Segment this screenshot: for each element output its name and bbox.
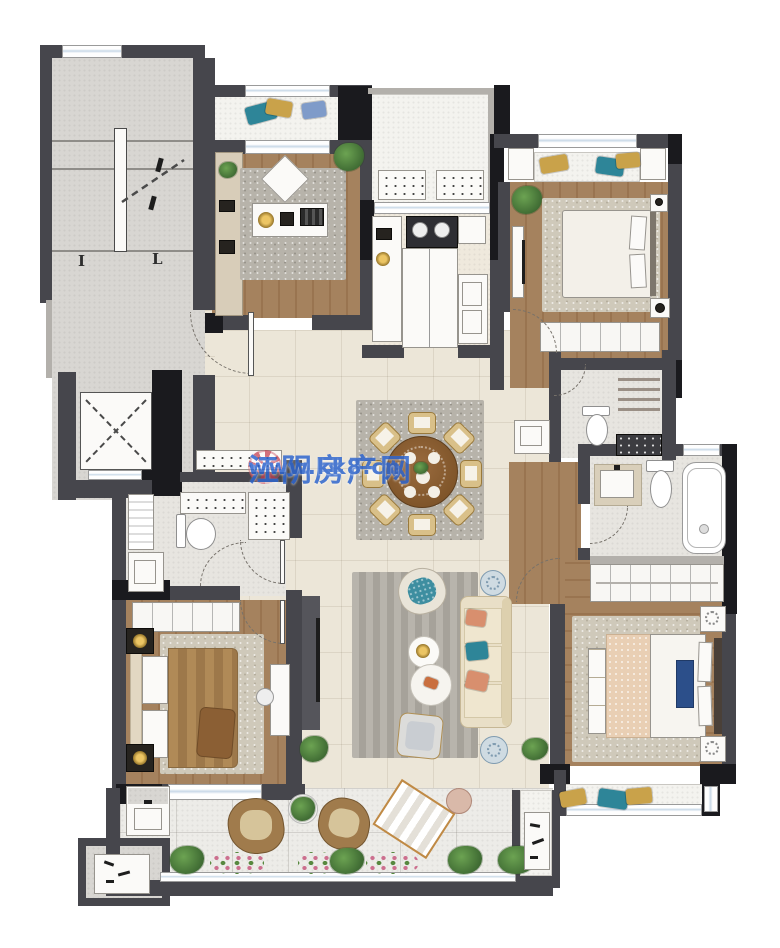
throw-pillow <box>465 641 489 661</box>
balcony-planter-box <box>640 148 666 180</box>
headboard <box>714 638 722 734</box>
wall <box>578 456 590 504</box>
place-setting <box>428 486 440 498</box>
window <box>704 786 718 812</box>
toilet-bowl <box>186 518 216 550</box>
toilet-bowl <box>586 414 608 446</box>
pillar <box>338 86 372 140</box>
pillow <box>629 215 647 250</box>
elevator-x-icon <box>80 392 152 470</box>
toilet-tank <box>176 514 186 548</box>
wall <box>40 45 52 303</box>
towel-bar <box>618 378 660 381</box>
kitchen-balcony-appliance <box>378 170 426 200</box>
towel-bar <box>618 398 660 401</box>
elevator-door <box>88 470 142 480</box>
wall <box>312 315 372 330</box>
pillow <box>697 686 712 726</box>
wall <box>46 300 52 378</box>
shelf-item <box>219 240 235 254</box>
wall <box>458 345 492 358</box>
headboard <box>650 212 656 296</box>
floor-plan: I L <box>0 0 780 948</box>
terrace-side-table <box>446 788 472 814</box>
flower-bed <box>366 852 418 874</box>
wall <box>106 880 553 896</box>
plan-mark <box>106 880 114 883</box>
window <box>374 202 490 214</box>
pillow <box>629 254 647 289</box>
plan-mark <box>530 856 538 859</box>
pillow <box>142 656 168 704</box>
utility-wall <box>78 898 170 906</box>
wall <box>362 345 404 358</box>
towel-bar <box>618 408 660 411</box>
faucet <box>614 465 620 470</box>
counter-item <box>376 252 390 266</box>
lamp <box>133 751 147 765</box>
dining-chair <box>408 514 436 536</box>
bed-bench <box>196 707 236 760</box>
window <box>245 140 330 154</box>
bathtub-drain <box>699 524 709 534</box>
table-decor <box>280 212 294 226</box>
balcony-cushion <box>625 787 652 805</box>
lamp <box>655 198 663 206</box>
bath2-vanity <box>616 434 662 456</box>
entry-door-leaf <box>248 312 254 376</box>
pillar <box>700 764 736 784</box>
study-bench <box>300 208 324 226</box>
desk-chair <box>256 688 274 706</box>
basin <box>600 470 634 498</box>
stair-mark-left: I <box>78 252 85 270</box>
wall <box>112 478 126 800</box>
lamp <box>655 303 665 313</box>
wall <box>368 88 494 94</box>
side-table-decor <box>486 576 500 590</box>
throw-pillow <box>465 609 487 628</box>
shelf-item <box>219 200 235 212</box>
lounge-chair-cushion <box>405 721 436 752</box>
pillow <box>697 642 712 682</box>
window <box>168 784 262 800</box>
dining-chair <box>460 460 482 488</box>
watermark: 江阴房产网 www.kk8.cn <box>248 450 282 484</box>
sink-basin <box>462 282 482 306</box>
washing-machine <box>128 494 154 550</box>
window <box>566 804 702 816</box>
window <box>245 85 330 97</box>
tv <box>522 240 525 284</box>
nightstand-decor <box>705 611 719 625</box>
stair-mark-right: L <box>152 250 163 268</box>
wall <box>512 876 560 888</box>
basin <box>134 560 156 584</box>
watermark-url: www.kk8.cn <box>248 455 401 479</box>
wall <box>550 604 565 770</box>
dining-chair <box>408 412 436 434</box>
wall <box>578 548 590 560</box>
wall <box>494 134 538 148</box>
basin <box>520 426 542 446</box>
sink-basin <box>134 808 162 830</box>
table-decor <box>258 212 274 228</box>
window <box>538 134 637 148</box>
side-table-decor <box>487 743 501 757</box>
utility-wall <box>78 838 170 846</box>
towel-bar <box>618 388 660 391</box>
flower-bed <box>210 852 264 874</box>
kitchen-door <box>402 248 458 348</box>
bed-runner <box>676 660 694 708</box>
utility-wall <box>78 838 86 906</box>
bedroom3-wardrobe <box>540 322 660 352</box>
wall <box>552 790 560 888</box>
balcony-planter-box <box>508 148 534 180</box>
bathtub-inner <box>687 468 722 548</box>
balcony-cushion <box>301 100 327 119</box>
wall <box>498 182 510 312</box>
place-setting <box>428 452 440 464</box>
pillar <box>668 134 682 164</box>
burner <box>434 222 450 238</box>
tv <box>316 618 320 702</box>
balcony-cushion <box>615 152 640 169</box>
coffee-table-decor <box>416 644 430 658</box>
kitchen-cabinet <box>458 216 486 244</box>
sink-basin <box>462 310 482 334</box>
counter-item <box>376 228 392 240</box>
kitchen-balcony-appliance <box>436 170 484 200</box>
bed-bench <box>588 648 606 734</box>
wall <box>590 556 724 564</box>
bath3-shelf <box>180 492 246 514</box>
sofa-back <box>502 598 511 726</box>
window <box>62 45 122 58</box>
toilet-bowl <box>650 470 672 508</box>
flower-bed <box>298 852 334 874</box>
window <box>683 444 720 456</box>
faucet <box>144 800 152 804</box>
lamp <box>133 634 147 648</box>
bath3-cabinet <box>248 492 290 540</box>
burner <box>412 222 428 238</box>
wicker-chair-cushion <box>240 810 272 840</box>
nightstand-decor <box>705 741 719 755</box>
bedroom4-door-leaf <box>280 600 285 644</box>
bath3-door-leaf <box>280 540 285 584</box>
pillar <box>494 85 510 140</box>
closet-rail <box>596 582 718 584</box>
